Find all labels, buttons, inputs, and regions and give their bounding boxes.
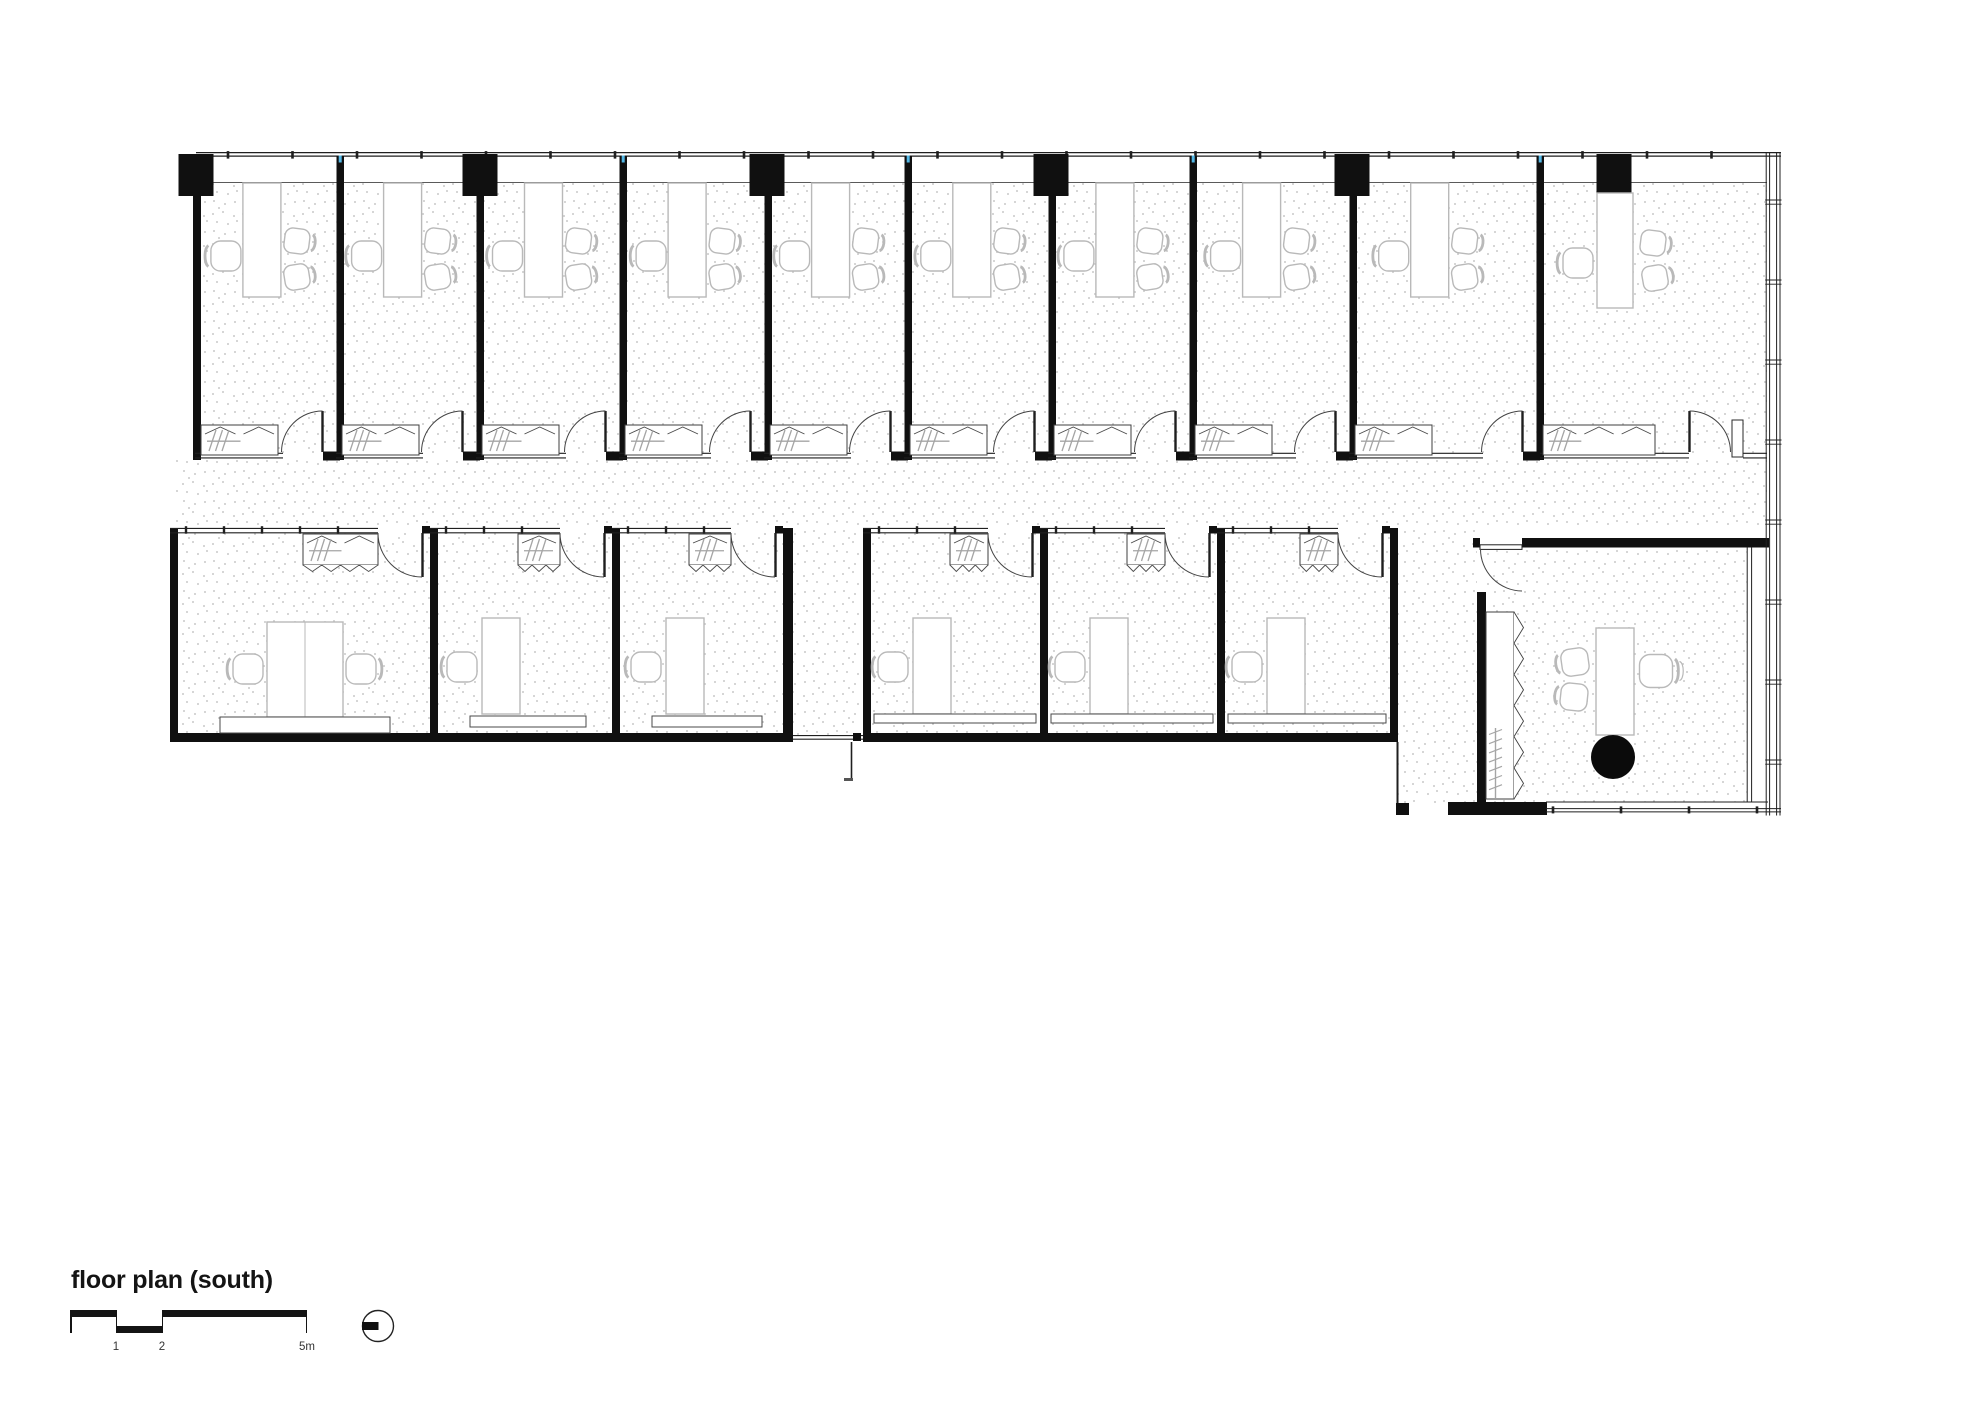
scale-label-1m: 1 <box>113 1341 119 1353</box>
coat-rack <box>950 534 988 572</box>
structural-column <box>1335 154 1370 196</box>
glazing-mullion <box>627 526 629 534</box>
exterior-wall-south <box>170 733 793 742</box>
scale-bar-tick <box>306 1310 308 1333</box>
chair-seat <box>1563 248 1593 278</box>
chair-seat <box>423 263 452 292</box>
glazing-mullion <box>521 526 523 534</box>
curtain-wall-east <box>1765 152 1781 816</box>
window-mullion <box>1552 806 1555 813</box>
curtain-wall-south <box>1546 802 1781 813</box>
partition-wall <box>612 528 620 734</box>
block-wall <box>170 528 178 742</box>
glazing-mullion <box>665 526 667 534</box>
glazing-mullion <box>1308 526 1310 534</box>
structural-column <box>179 154 214 196</box>
scale-bar-segment <box>70 1310 116 1317</box>
door-jamb <box>1523 452 1540 461</box>
wall-band-joint <box>1192 156 1195 163</box>
glazing-mullion <box>878 526 880 534</box>
window-mullion <box>1581 151 1584 159</box>
entry-passage <box>793 733 863 781</box>
door-leaf <box>1480 545 1522 550</box>
north-arrow-bar <box>362 1322 379 1330</box>
coat-cabinet <box>1355 425 1432 455</box>
sideboard <box>652 716 762 727</box>
chair-seat <box>1136 263 1165 292</box>
chair-seat <box>1451 227 1479 255</box>
floor-plan-sheet: floor plan (south) 1 2 5m <box>0 0 1984 1403</box>
cabinet-body <box>1543 425 1655 455</box>
chair-seat <box>636 241 666 271</box>
coat-cabinet <box>1195 425 1272 455</box>
wall-stub <box>1473 538 1480 548</box>
partition-wall <box>765 156 773 460</box>
cabinet-body <box>950 534 988 565</box>
wall-band-joint <box>1539 156 1542 163</box>
window-mullion <box>1688 806 1691 813</box>
partition-wall <box>1190 156 1198 460</box>
coat-rack <box>1300 534 1338 572</box>
north-arrow-icon <box>358 1306 400 1348</box>
chair-seat <box>1559 682 1589 712</box>
partition-wall <box>620 156 628 460</box>
window-mullion <box>1001 151 1004 159</box>
chair-seat <box>352 241 382 271</box>
desk <box>953 183 991 297</box>
door-stop <box>844 778 853 781</box>
partition-wall <box>430 528 438 734</box>
office-wall-west <box>1477 592 1486 803</box>
scale-label-2m: 2 <box>159 1341 165 1353</box>
scale-bar-segment <box>116 1326 162 1333</box>
chair-seat <box>1282 263 1311 292</box>
window-mullion <box>356 151 359 159</box>
block-wall <box>783 528 793 742</box>
chair-seat <box>1639 229 1667 257</box>
glazing-mullion <box>223 526 225 534</box>
coat-cabinet <box>1543 425 1655 455</box>
door-jamb <box>604 526 612 534</box>
chair-seat <box>1450 263 1479 292</box>
glazing-mullion <box>1093 526 1095 534</box>
partition-wall <box>337 156 345 460</box>
rack-teeth <box>689 565 731 572</box>
coat-rack <box>518 534 560 572</box>
glazing-mullion <box>1270 526 1272 534</box>
glazing-mullion <box>1232 526 1234 534</box>
window-mullion <box>1710 151 1713 159</box>
window-mullion <box>1323 151 1326 159</box>
scale-bar-segment <box>162 1310 307 1317</box>
chair-seat <box>921 241 951 271</box>
desk <box>1096 183 1134 297</box>
window-mullion <box>614 151 617 159</box>
glazing-mullion <box>299 526 301 534</box>
coat-rack <box>689 534 731 572</box>
wall-band-joint <box>622 156 625 163</box>
chair-seat <box>233 654 263 684</box>
chair-seat <box>993 227 1021 255</box>
sideboard <box>874 714 1036 723</box>
coat-rack <box>1127 534 1165 572</box>
chair-seat <box>283 227 311 255</box>
coat-cabinet <box>482 425 559 455</box>
glazing-mullion <box>445 526 447 534</box>
chair-seat <box>564 263 593 292</box>
chair-seat <box>1283 227 1311 255</box>
chair-seat <box>565 227 593 255</box>
desk <box>525 183 563 297</box>
desk <box>384 183 422 297</box>
partition-wall <box>477 156 485 460</box>
door-jamb <box>422 526 430 534</box>
desk <box>812 183 850 297</box>
sideboard <box>1228 714 1386 723</box>
scale-bar-tick <box>116 1310 118 1333</box>
chair-seat <box>1641 264 1670 293</box>
coat-cabinet <box>770 425 847 455</box>
chair-seat <box>878 652 908 682</box>
sideboard <box>220 717 390 733</box>
chair-seat <box>346 654 376 684</box>
desk <box>668 183 706 297</box>
chair-seat <box>1232 652 1262 682</box>
window-mullion <box>1259 151 1262 159</box>
chair-seat <box>708 227 736 255</box>
door-jamb <box>1209 526 1217 534</box>
coat-cabinet <box>910 425 987 455</box>
desk <box>913 618 951 714</box>
coat-cabinet <box>625 425 702 455</box>
glazing-mullion <box>1131 526 1133 534</box>
door-jamb <box>853 733 861 741</box>
drawing-title: floor plan (south) <box>71 1266 273 1295</box>
chair-seat <box>1379 241 1409 271</box>
glazing-mullion <box>483 526 485 534</box>
scale-bar-tick <box>162 1310 164 1333</box>
chair-seat <box>211 241 241 271</box>
glazing-mullion <box>703 526 705 534</box>
chair-seat <box>424 227 452 255</box>
structural-column <box>1597 154 1632 196</box>
chair-seat <box>852 227 880 255</box>
glazing-mullion <box>261 526 263 534</box>
exterior-wall-south <box>1448 802 1547 815</box>
desk <box>1090 618 1128 714</box>
floor-plan-drawing <box>0 0 1984 1403</box>
coat-cabinet <box>1054 425 1131 455</box>
glazing-mullion <box>916 526 918 534</box>
structural-column <box>463 154 498 196</box>
sideboard <box>470 716 586 727</box>
rack-teeth <box>1300 565 1338 572</box>
chair-seat <box>283 263 312 292</box>
scale-label-5m: 5m <box>299 1341 315 1353</box>
office-wall-north <box>1522 538 1769 548</box>
lobby-floor <box>1398 528 1477 803</box>
block-wall <box>863 528 871 733</box>
chair-seat <box>1560 647 1590 677</box>
chair-seat <box>447 652 477 682</box>
chair-seat <box>851 263 880 292</box>
door-jamb <box>1396 803 1409 815</box>
window-mullion <box>291 151 294 159</box>
exterior-wall-west <box>193 156 201 460</box>
window-mullion <box>1620 806 1623 813</box>
glazing-mullion <box>185 526 187 534</box>
door-jamb <box>775 526 783 534</box>
door-jamb <box>1382 526 1390 534</box>
coat-cabinet <box>342 425 419 455</box>
exterior-wall-south <box>863 733 1398 742</box>
window-mullion <box>807 151 810 159</box>
partition-wall <box>1350 156 1358 460</box>
desk <box>1411 183 1449 297</box>
partition-wall <box>1049 156 1057 460</box>
desk <box>666 618 704 714</box>
window-mullion <box>549 151 552 159</box>
desk <box>1596 628 1634 735</box>
wall-stub <box>1732 420 1743 457</box>
partition-wall <box>1537 156 1545 460</box>
chair-seat <box>631 652 661 682</box>
rack-teeth <box>518 565 560 572</box>
chair-seat <box>1136 227 1164 255</box>
desk <box>1243 183 1281 297</box>
window-mullion <box>678 151 681 159</box>
desk <box>1597 193 1633 308</box>
structural-column <box>1034 154 1069 196</box>
window-mullion <box>872 151 875 159</box>
chair-seat <box>1064 241 1094 271</box>
window-mullion <box>1388 151 1391 159</box>
rack-teeth <box>1127 565 1165 572</box>
wall-band-joint <box>907 156 910 163</box>
chair-seat <box>708 263 737 292</box>
passage-floor <box>793 528 863 735</box>
window-mullion <box>227 151 230 159</box>
wall-band-joint <box>339 156 342 163</box>
chair-seat <box>1211 241 1241 271</box>
round-table <box>1591 735 1635 779</box>
corridor-floor <box>176 460 1767 528</box>
desk <box>1267 618 1305 714</box>
window-mullion <box>420 151 423 159</box>
partition-wall <box>905 156 913 460</box>
rack-teeth <box>950 565 988 572</box>
chair-seat <box>1640 655 1673 688</box>
chair-seat <box>493 241 523 271</box>
chair-seat <box>780 241 810 271</box>
cabinet-body <box>1127 534 1165 565</box>
window-mullion <box>1452 151 1455 159</box>
window-mullion <box>743 151 746 159</box>
window-mullion <box>936 151 939 159</box>
cabinet-body <box>1300 534 1338 565</box>
desk <box>482 618 520 714</box>
desk <box>243 183 281 297</box>
coat-cabinet <box>201 425 278 455</box>
structural-column <box>750 154 785 196</box>
glazing-mullion <box>1055 526 1057 534</box>
glazing-mullion <box>337 526 339 534</box>
sideboard <box>1051 714 1213 723</box>
chair-seat <box>1055 652 1085 682</box>
window-mullion <box>1756 806 1759 813</box>
partition-wall <box>1217 528 1225 733</box>
door-jamb <box>1032 526 1040 534</box>
scale-bar-tick <box>70 1310 72 1333</box>
block-wall <box>1390 528 1398 742</box>
partition-wall <box>1040 528 1048 733</box>
window-mullion <box>1517 151 1520 159</box>
chair-seat <box>992 263 1021 292</box>
window-mullion <box>1646 151 1649 159</box>
window-mullion <box>1130 151 1133 159</box>
glazing-mullion <box>954 526 956 534</box>
